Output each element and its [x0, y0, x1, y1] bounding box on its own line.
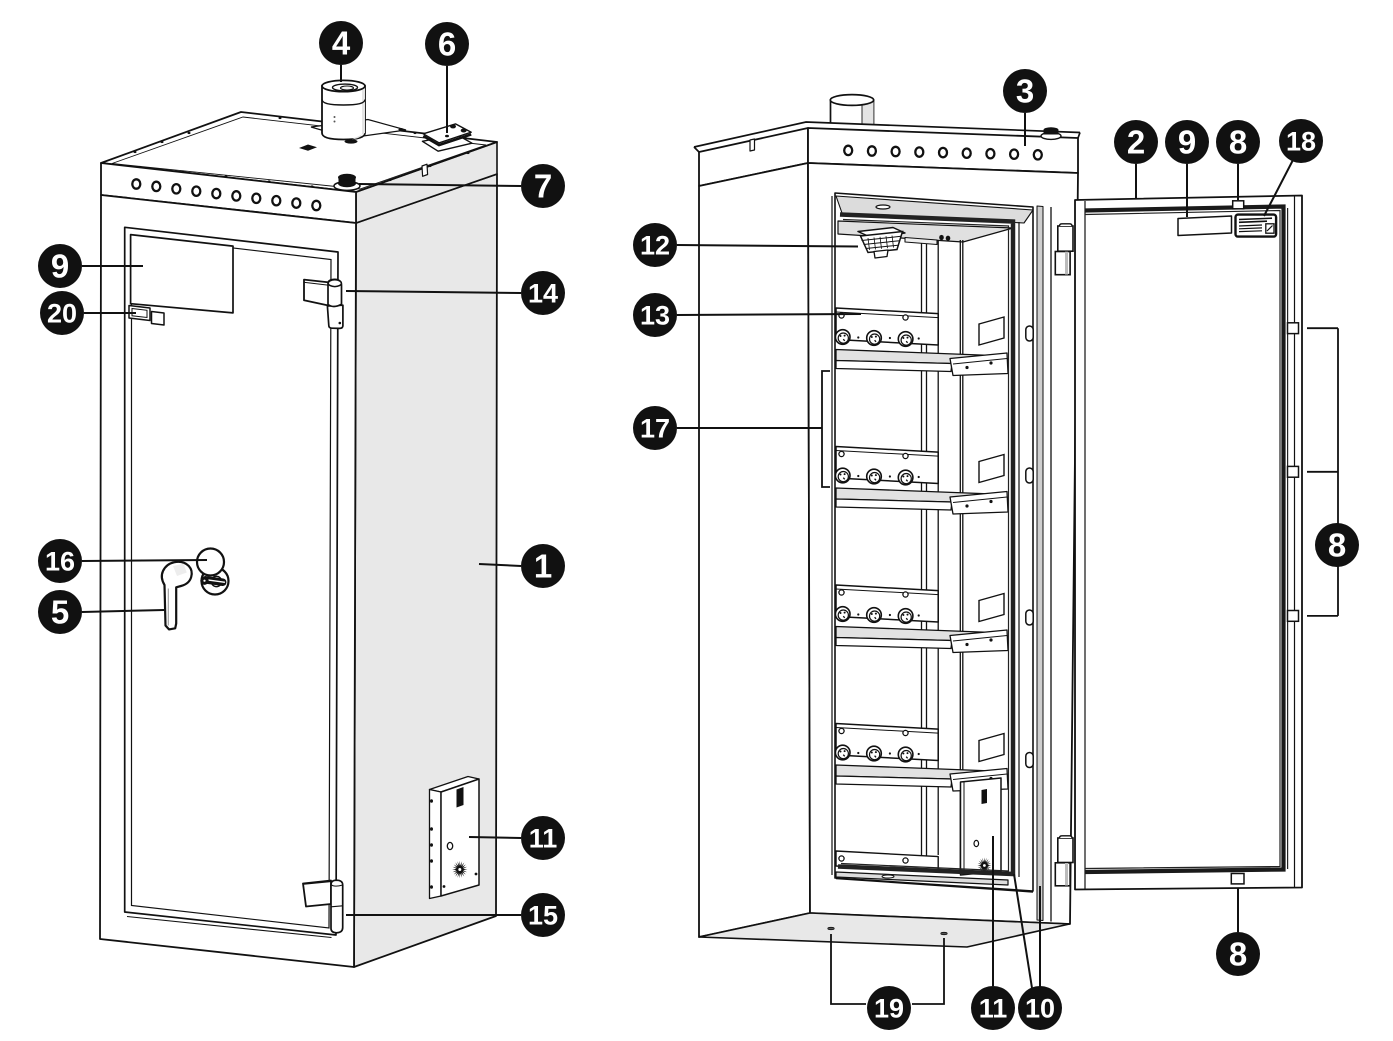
- svg-text:11: 11: [979, 994, 1008, 1024]
- svg-text:9: 9: [51, 248, 69, 285]
- svg-text:2: 2: [1127, 124, 1145, 161]
- svg-text:1: 1: [534, 548, 552, 585]
- svg-text:14: 14: [528, 279, 558, 309]
- svg-text:4: 4: [332, 25, 351, 62]
- svg-text:8: 8: [1328, 527, 1346, 564]
- svg-text:13: 13: [640, 301, 670, 331]
- svg-text:15: 15: [528, 901, 558, 931]
- svg-text:5: 5: [51, 594, 69, 631]
- svg-text:17: 17: [640, 414, 670, 444]
- svg-text:10: 10: [1025, 994, 1055, 1024]
- svg-text:3: 3: [1016, 73, 1034, 110]
- svg-text:7: 7: [534, 168, 552, 205]
- svg-text:19: 19: [874, 994, 904, 1024]
- svg-text:6: 6: [438, 26, 456, 63]
- svg-text:12: 12: [640, 231, 670, 261]
- svg-text:9: 9: [1178, 124, 1196, 161]
- svg-text:8: 8: [1229, 124, 1247, 161]
- svg-text:18: 18: [1286, 127, 1316, 157]
- svg-text:16: 16: [45, 547, 75, 577]
- svg-text:11: 11: [529, 824, 558, 854]
- svg-text:8: 8: [1229, 936, 1247, 973]
- svg-text:20: 20: [47, 299, 77, 329]
